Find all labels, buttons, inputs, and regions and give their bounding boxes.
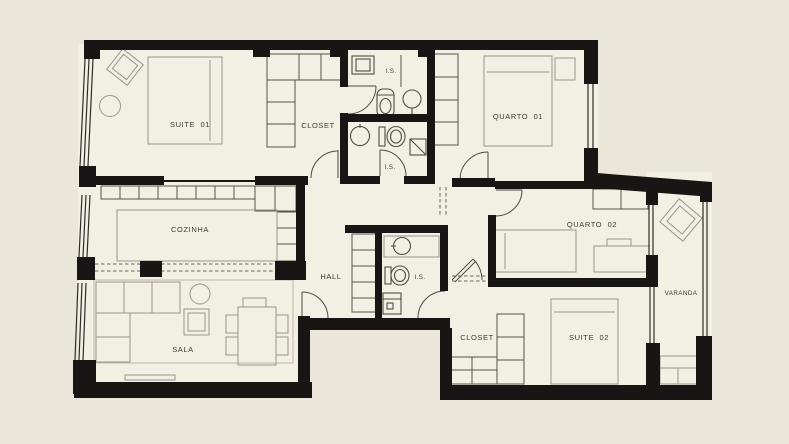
toilet bbox=[379, 127, 405, 147]
label-bath-2: I.S. bbox=[384, 164, 395, 171]
floor-plan-canvas: SUITE 01 CLOSET I.S. I.S. QUARTO 01 COZI… bbox=[0, 0, 789, 444]
toilet bbox=[377, 89, 394, 117]
label-bath-1: I.S. bbox=[385, 68, 396, 75]
washer bbox=[383, 293, 401, 314]
label-cozinha: COZINHA bbox=[171, 225, 209, 234]
label-closet-2: CLOSET bbox=[460, 333, 494, 342]
toilet bbox=[385, 266, 409, 285]
label-varanda: VARANDA bbox=[665, 290, 698, 297]
label-bath-3: I.S. bbox=[414, 274, 425, 281]
label-sala: SALA bbox=[172, 345, 194, 354]
cabinet bbox=[410, 139, 426, 155]
label-quarto-02: QUARTO 02 bbox=[567, 220, 617, 229]
label-suite-02: SUITE 02 bbox=[569, 333, 609, 342]
label-closet-1: CLOSET bbox=[301, 121, 335, 130]
label-hall: HALL bbox=[320, 272, 341, 281]
label-suite-01: SUITE 01 bbox=[170, 120, 210, 129]
wall-sink bbox=[352, 56, 374, 74]
label-quarto-01: QUARTO 01 bbox=[493, 112, 543, 121]
floor-plan-drawing: SUITE 01 CLOSET I.S. I.S. QUARTO 01 COZI… bbox=[0, 0, 789, 444]
